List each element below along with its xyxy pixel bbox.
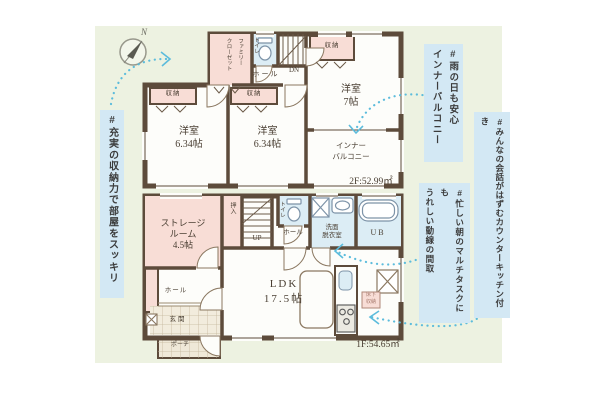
hashtag-inner-balcony: #雨の日も安心 インナーバルコニー (424, 44, 463, 162)
room-label-entrance-hall: ホール (158, 287, 194, 295)
underfloor-storage-label: 床下 収納 (362, 293, 380, 306)
room-label-western-room-b: 洋室 6.34帖 (229, 126, 306, 151)
hashtag-flow-line: #忙しい朝のマルチタスクにも うれしい動線の間取 (419, 183, 470, 323)
toilet-icon-2f (258, 38, 272, 60)
stairs-up-label: UP (243, 234, 271, 243)
room-label-toilet-2f: トイレ (252, 37, 260, 65)
room-label-family-closet: ファミリー クローゼット (222, 38, 245, 84)
floor2-outline (142, 31, 404, 189)
room-label-western-room-c: 洋室 7帖 (314, 84, 388, 109)
room-label-toilet-1f: トイレ (278, 201, 286, 229)
floor2-area-label: 2F:52.99㎡ (340, 177, 402, 189)
closet-label-2: 収納 (231, 90, 277, 98)
floorplan-image: ファミリー クローゼット トイレ ホール DN 収納 収納 収納 洋室 6.34… (0, 0, 600, 400)
refrigerator-space-icon (377, 270, 398, 293)
hashtag-storage: #充実の収納力で部屋をスッキリ (100, 110, 124, 298)
hashtag-counter-kitchen: #みんなの会話がはずむカウンターキッチン付き (474, 112, 510, 318)
room-label-inner-balcony: インナー バルコニー (314, 141, 388, 162)
room-label-storage-room: ストレージ ルーム 4.5帖 (148, 218, 218, 250)
room-label-western-room-a: 洋室 6.34帖 (150, 126, 228, 151)
washbasin-icon (332, 198, 353, 213)
kitchen-sink-icon (339, 271, 352, 290)
room-label-hall-2f: ホール (246, 70, 286, 79)
room-label-oshiire: 押入 (228, 202, 237, 232)
shoe-cabinet-icon (146, 314, 157, 325)
room-label-unit-bath: UB (360, 228, 396, 238)
room-label-hall-1f: ホール (276, 229, 310, 237)
washing-machine-icon (312, 198, 329, 217)
stove-icon (337, 305, 355, 332)
compass-icon (120, 39, 146, 65)
toilet-icon-1f (287, 199, 301, 221)
closet-label-1: 収納 (150, 90, 196, 98)
floorplan-graphic (0, 0, 600, 400)
room-label-entrance: 玄関 (158, 316, 198, 324)
stairs-down-label: DN (284, 66, 304, 75)
bathtub-icon (359, 200, 398, 221)
floor1-area-label: 1F:54.65㎡ (348, 340, 408, 352)
room-label-porch: ポーチ (160, 342, 200, 350)
room-label-washroom: 洗面 脱衣室 (312, 224, 352, 240)
room-label-ldk: LDK 17.5帖 (240, 277, 328, 307)
compass-north-label: N (138, 27, 150, 38)
closet-label-3: 収納 (310, 42, 354, 50)
